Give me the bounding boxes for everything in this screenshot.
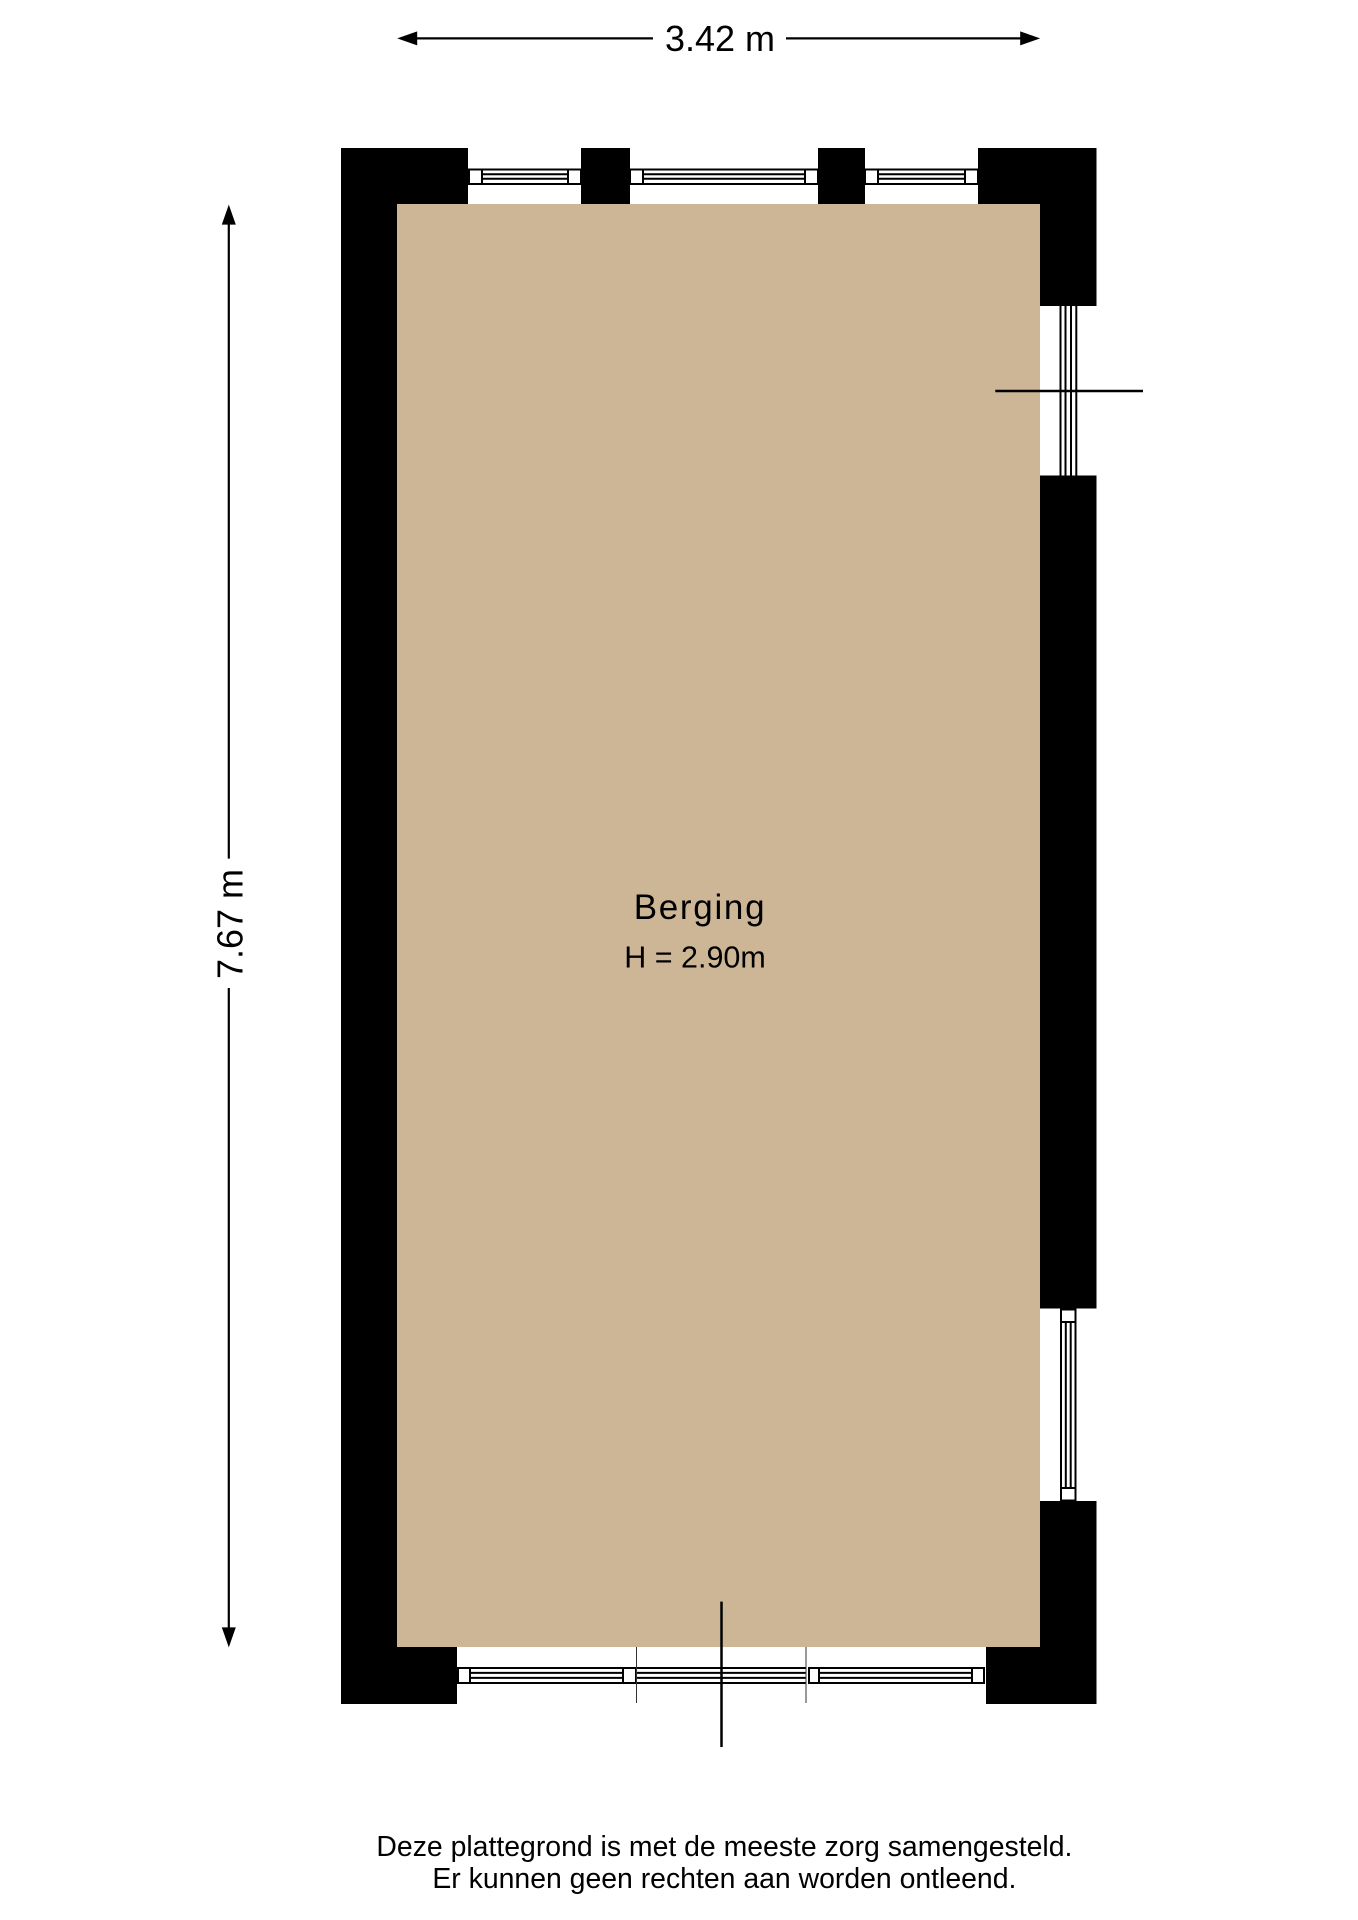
svg-text:7.67 m: 7.67 m bbox=[210, 869, 251, 979]
svg-text:Er kunnen geen rechten aan wor: Er kunnen geen rechten aan worden ontlee… bbox=[432, 1863, 1016, 1895]
svg-text:Deze plattegrond is met de mee: Deze plattegrond is met de meeste zorg s… bbox=[376, 1831, 1072, 1863]
svg-text:Berging: Berging bbox=[634, 888, 767, 927]
svg-text:3.42 m: 3.42 m bbox=[665, 18, 775, 59]
svg-text:H = 2.90m: H = 2.90m bbox=[624, 941, 766, 975]
